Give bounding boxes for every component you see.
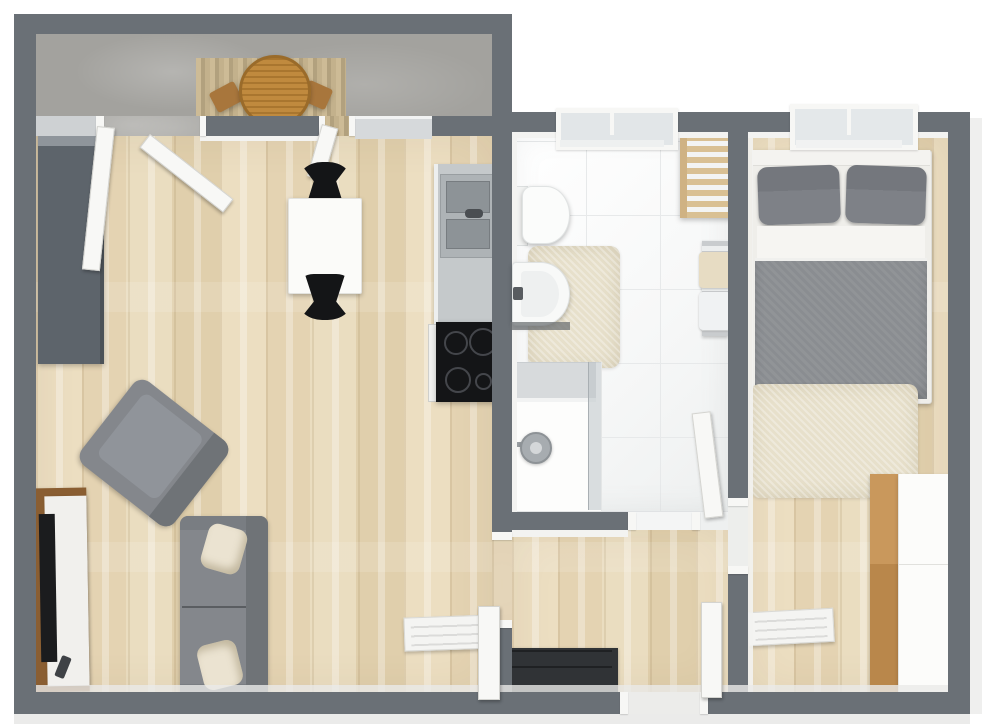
bedroom-window-sill — [796, 140, 902, 148]
sink-basin-bottom — [446, 219, 490, 249]
bed-headboard — [752, 150, 930, 166]
living-hallway-door-panel — [478, 606, 500, 700]
front-door-threshold — [628, 692, 700, 714]
bathroom-door-threshold — [636, 512, 692, 530]
shower-glass-side — [588, 362, 601, 510]
wardrobe-seam — [899, 564, 951, 565]
building-face-right — [970, 118, 982, 714]
wall-living-top-right — [432, 116, 492, 136]
jamb-bedroom-top — [728, 498, 748, 506]
face-bedroom-left — [748, 138, 753, 692]
cooktop — [436, 322, 498, 402]
burner-1 — [444, 331, 468, 355]
washbasin-faucet — [513, 287, 523, 300]
jamb-bath-right — [692, 512, 700, 530]
kitchen-window-band — [355, 116, 432, 139]
washbasin-bowl — [521, 271, 559, 317]
jamb-bedroom-bottom — [728, 566, 748, 574]
front-entrance-door-panel — [701, 602, 722, 698]
wall-bedroom-upper — [728, 132, 748, 505]
washbasin-shadow-line — [510, 322, 570, 330]
sofa — [180, 516, 268, 698]
kitchen-double-sink — [440, 174, 496, 258]
wardrobe-side-panel — [870, 474, 899, 698]
building-face-bottom — [14, 714, 970, 724]
bed-duvet-texture — [755, 261, 927, 399]
balcony-door-left-opening — [104, 116, 200, 136]
towel-beige — [699, 252, 731, 288]
jamb-balcony-mid-left — [200, 116, 206, 136]
wall-outer-left — [14, 14, 36, 712]
wall-bed-top-left — [748, 112, 790, 132]
bed-pillow-left — [757, 165, 841, 226]
bathroom-window-mullion — [610, 113, 614, 135]
wall-bath-top-right — [668, 112, 748, 132]
jamb-bath-left — [628, 512, 636, 530]
jamb-balcony-right — [349, 116, 355, 136]
jamb-living-hall-top — [492, 532, 512, 540]
face-bath-hall — [512, 530, 628, 537]
jamb-front-left — [620, 692, 628, 714]
wall-mid-upper — [492, 14, 512, 540]
face-living-top — [200, 136, 325, 141]
towel-white — [699, 292, 731, 330]
floor-plan — [0, 0, 1000, 728]
wall-outer-right — [948, 112, 970, 712]
wall-living-top-left — [36, 116, 96, 136]
wall-bath-hall — [512, 512, 628, 530]
bathroom-window-sill — [560, 140, 664, 147]
bed-pillow-right — [845, 165, 927, 226]
wall-outer-bottom-right — [708, 692, 970, 714]
sink-faucet — [465, 209, 483, 218]
bedroom-window-mullion — [847, 109, 851, 135]
sofa-seat-seam — [182, 606, 246, 608]
wall-outer-top — [14, 14, 512, 34]
wall-living-top-mid — [200, 116, 325, 136]
sofa-backrest — [246, 516, 268, 698]
wall-bedroom-lower — [728, 568, 748, 692]
washbasin — [512, 262, 570, 326]
shower-head-center — [530, 442, 542, 454]
shoe-bench-frame — [510, 650, 612, 668]
toilet-bowl — [522, 186, 570, 244]
wall-bath-top-left — [512, 112, 556, 132]
shower-glass-top — [508, 362, 596, 402]
wardrobe-body — [898, 474, 951, 698]
tv-screen — [39, 514, 58, 662]
wall-outer-bottom-left — [14, 692, 620, 714]
bed-duvet — [755, 258, 927, 399]
bedroom-door-threshold — [728, 506, 748, 566]
burner-4 — [475, 373, 492, 390]
burner-3 — [445, 367, 471, 393]
bedroom-radiator — [747, 608, 835, 646]
shower-head — [520, 432, 552, 464]
